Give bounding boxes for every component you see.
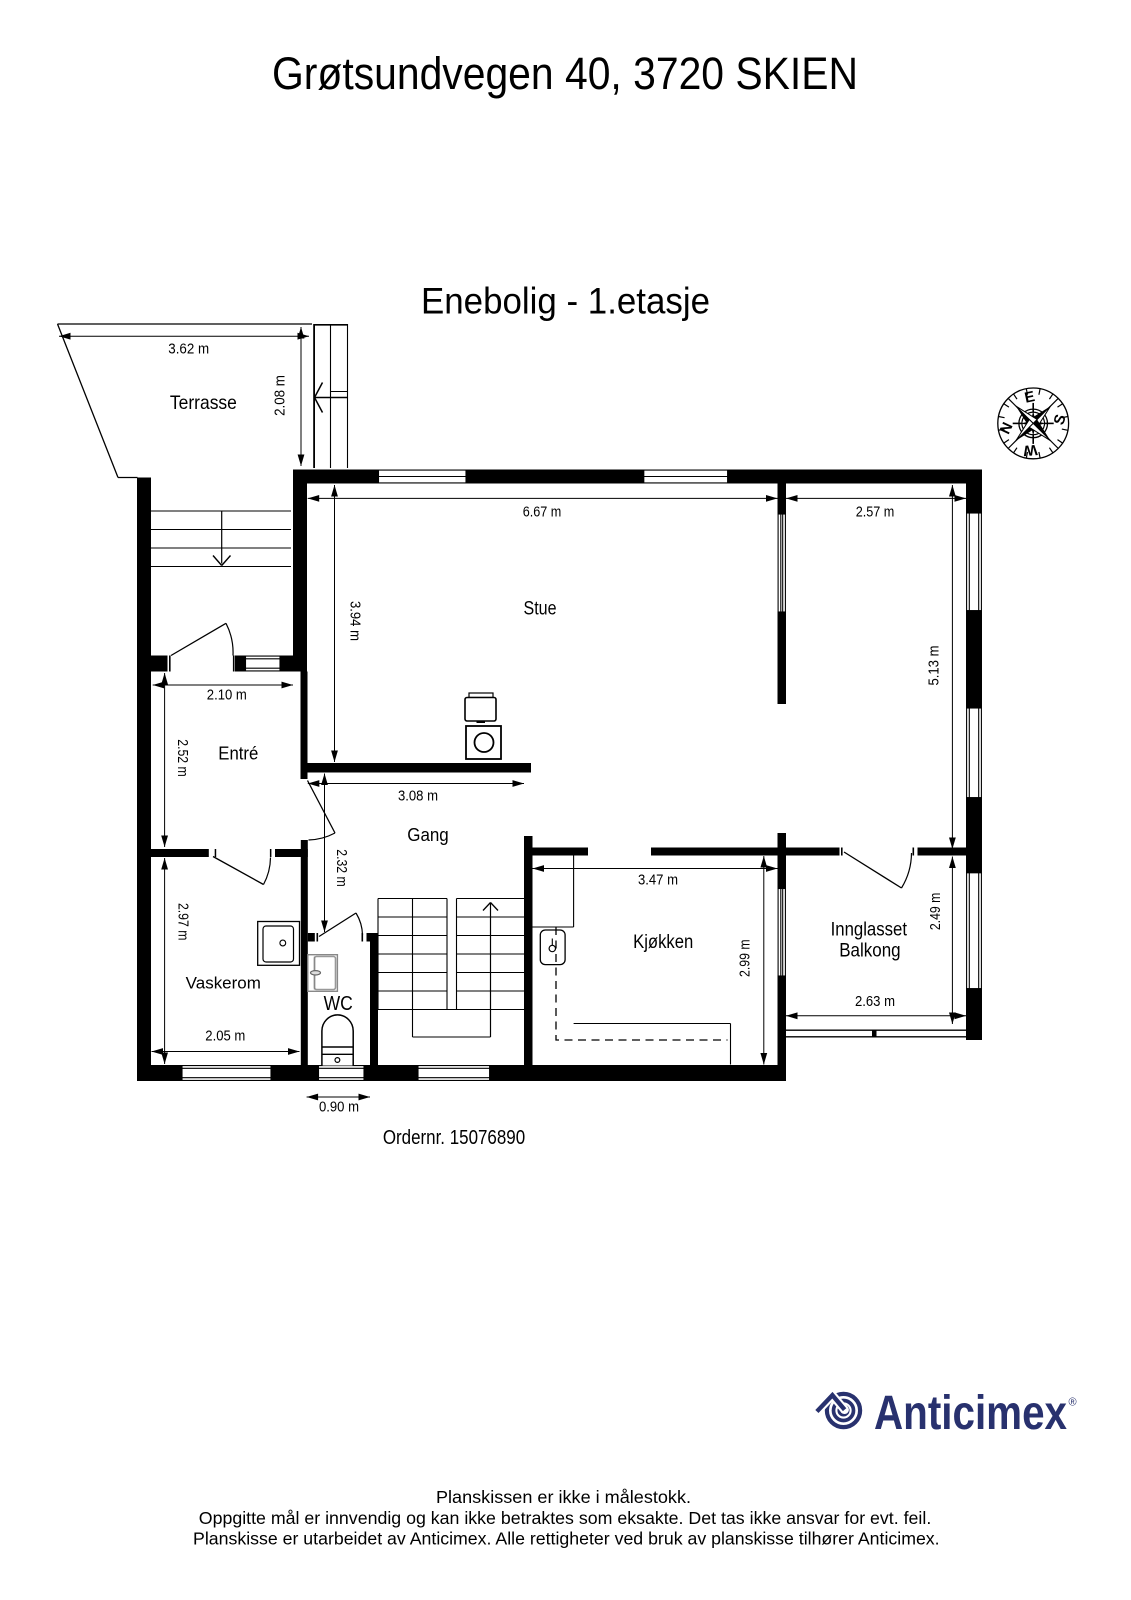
svg-text:3.94 m: 3.94 m (347, 601, 363, 641)
svg-text:2.05 m: 2.05 m (205, 1029, 245, 1045)
svg-text:Planskisse er utarbeidet av An: Planskisse er utarbeidet av Anticimex. A… (193, 1529, 940, 1549)
svg-text:2.97 m: 2.97 m (174, 903, 190, 941)
svg-text:Grøtsundvegen 40, 3720 SKIEN: Grøtsundvegen 40, 3720 SKIEN (272, 48, 858, 99)
svg-text:0.90 m: 0.90 m (319, 1099, 359, 1115)
svg-text:2.08 m: 2.08 m (273, 375, 289, 416)
svg-text:Terrasse: Terrasse (170, 392, 237, 414)
svg-text:Gang: Gang (407, 825, 449, 845)
svg-text:2.57 m: 2.57 m (856, 505, 895, 521)
svg-text:Innglasset: Innglasset (831, 918, 908, 940)
svg-text:2.99 m: 2.99 m (738, 939, 754, 977)
svg-text:6.67 m: 6.67 m (523, 505, 562, 521)
svg-text:W: W (1022, 441, 1038, 459)
svg-text:Ordernr. 15076890: Ordernr. 15076890 (383, 1127, 525, 1149)
svg-text:2.63 m: 2.63 m (855, 994, 895, 1010)
svg-text:Kjøkken: Kjøkken (633, 931, 693, 953)
svg-text:3.08 m: 3.08 m (398, 789, 438, 805)
svg-text:Enebolig - 1.etasje: Enebolig - 1.etasje (421, 280, 710, 322)
svg-text:2.49 m: 2.49 m (928, 893, 944, 931)
svg-text:Oppgitte mål er innvendig og k: Oppgitte mål er innvendig og kan ikke be… (199, 1508, 932, 1528)
svg-text:®: ® (1068, 1397, 1076, 1409)
svg-text:2.10 m: 2.10 m (207, 688, 247, 704)
svg-text:2.32 m: 2.32 m (333, 849, 349, 887)
svg-text:Anticimex: Anticimex (874, 1387, 1067, 1440)
svg-text:Vaskerom: Vaskerom (186, 973, 261, 992)
svg-text:WC: WC (324, 993, 353, 1015)
svg-text:5.13 m: 5.13 m (927, 645, 943, 685)
svg-text:Stue: Stue (524, 597, 557, 619)
svg-text:2.52 m: 2.52 m (174, 739, 190, 777)
svg-text:3.47 m: 3.47 m (638, 872, 678, 888)
svg-text:Entré: Entré (218, 744, 258, 764)
svg-text:Planskissen er ikke i målestok: Planskissen er ikke i målestokk. (436, 1487, 691, 1507)
svg-text:3.62 m: 3.62 m (168, 341, 209, 357)
svg-text:Balkong: Balkong (839, 939, 900, 961)
